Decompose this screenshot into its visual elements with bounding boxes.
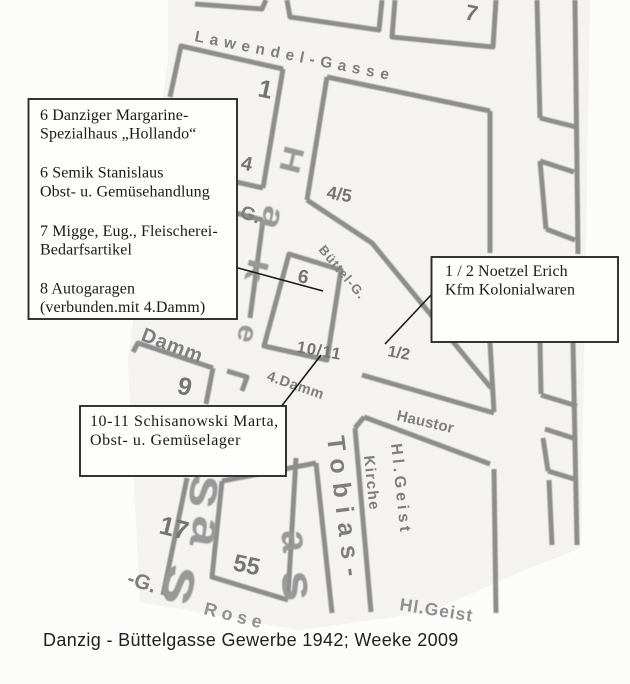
svg-text:Obst- u. Gemüsehandlung: Obst- u. Gemüsehandlung [40, 184, 210, 201]
svg-text:10-11 Schisanowski Marta,: 10-11 Schisanowski Marta, [90, 413, 279, 430]
svg-text:4/5: 4/5 [325, 182, 353, 206]
svg-text:Bedarfsartikel: Bedarfsartikel [40, 242, 132, 259]
svg-text:1 / 2 Noetzel Erich: 1 / 2 Noetzel Erich [445, 263, 568, 280]
svg-text:Danzig - Büttelgasse Gewerbe 1: Danzig - Büttelgasse Gewerbe 1942; Weeke… [43, 630, 459, 650]
svg-text:Obst- u. Gemüselager: Obst- u. Gemüselager [90, 432, 241, 449]
svg-text:Spezialhaus „Hollando“: Spezialhaus „Hollando“ [40, 126, 196, 143]
svg-text:s: s [271, 568, 325, 603]
svg-text:7 Migge, Eug., Fleischerei-: 7 Migge, Eug., Fleischerei- [40, 223, 218, 240]
svg-text:Kfm Kolonialwaren: Kfm Kolonialwaren [445, 282, 575, 299]
svg-text:8 Autogaragen: 8 Autogaragen [40, 281, 135, 298]
svg-text:6 Semik Stanislaus: 6 Semik Stanislaus [40, 165, 164, 182]
svg-text:55: 55 [231, 549, 263, 581]
svg-text:6 Danziger Margarine-: 6 Danziger Margarine- [40, 107, 188, 124]
svg-text:a: a [273, 528, 317, 554]
svg-text:(verbunden.mit 4.Damm): (verbunden.mit 4.Damm) [40, 299, 205, 316]
